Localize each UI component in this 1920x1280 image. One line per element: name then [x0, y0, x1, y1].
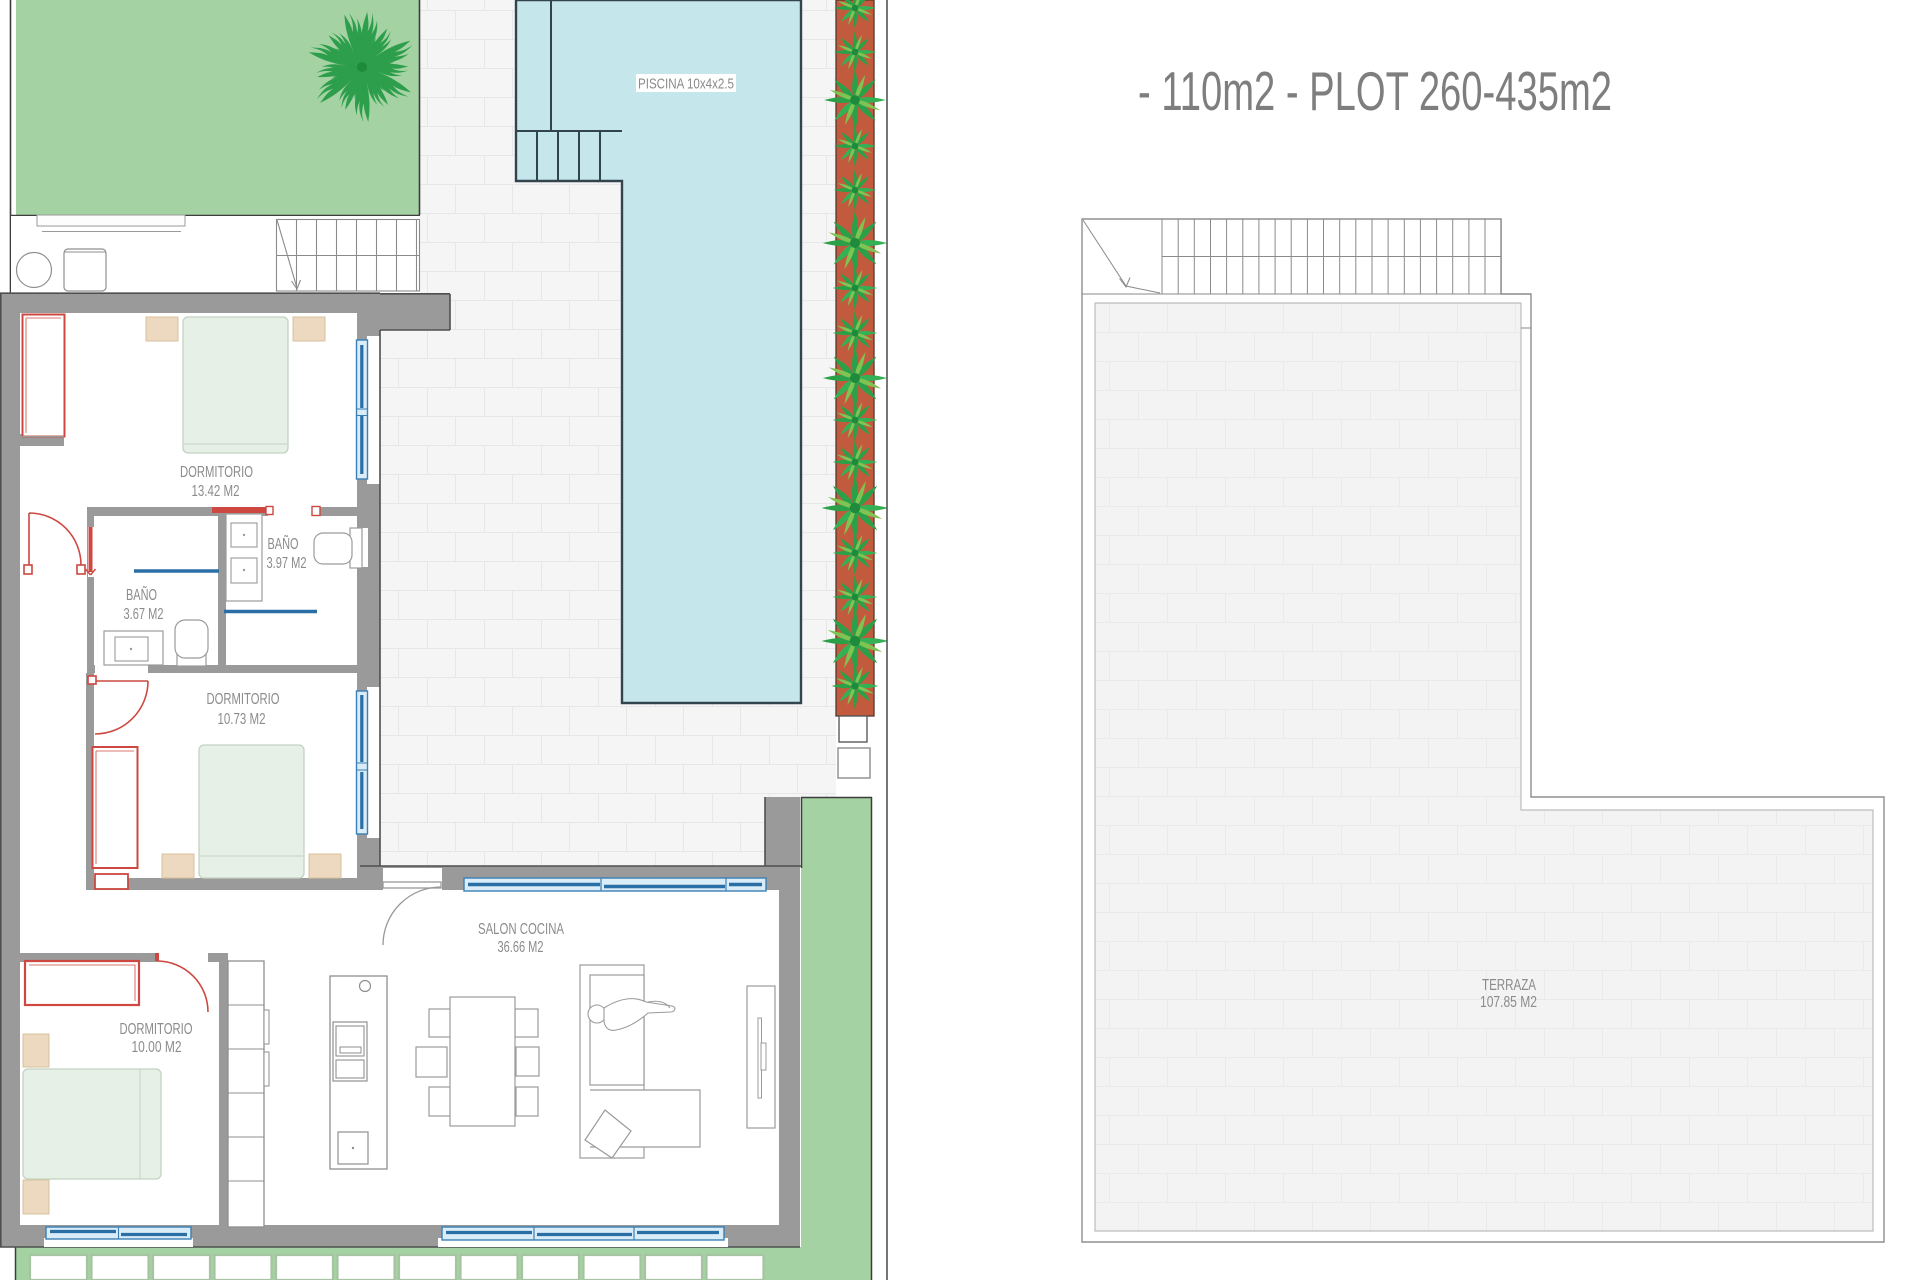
svg-text:- 110m2 - PLOT 260-435m2: - 110m2 - PLOT 260-435m2 — [1138, 61, 1612, 122]
svg-text:107.85 M2: 107.85 M2 — [1480, 994, 1537, 1011]
svg-text:10.00 M2: 10.00 M2 — [132, 1039, 182, 1056]
svg-text:DORMITORIO: DORMITORIO — [120, 1021, 193, 1038]
svg-text:3.97 M2: 3.97 M2 — [267, 555, 307, 572]
svg-text:SALON COCINA: SALON COCINA — [478, 921, 564, 938]
svg-text:PISCINA 10x4x2.5: PISCINA 10x4x2.5 — [638, 76, 734, 93]
svg-text:13.42 M2: 13.42 M2 — [192, 483, 240, 500]
svg-text:BAÑO: BAÑO — [268, 536, 299, 553]
svg-text:BAÑO: BAÑO — [126, 587, 157, 604]
svg-text:36.66 M2: 36.66 M2 — [498, 939, 544, 956]
svg-text:3.67 M2: 3.67 M2 — [124, 606, 164, 623]
svg-text:DORMITORIO: DORMITORIO — [180, 464, 253, 481]
svg-text:DORMITORIO: DORMITORIO — [207, 691, 280, 708]
svg-text:10.73 M2: 10.73 M2 — [218, 711, 266, 728]
svg-text:TERRAZA: TERRAZA — [1482, 977, 1536, 994]
